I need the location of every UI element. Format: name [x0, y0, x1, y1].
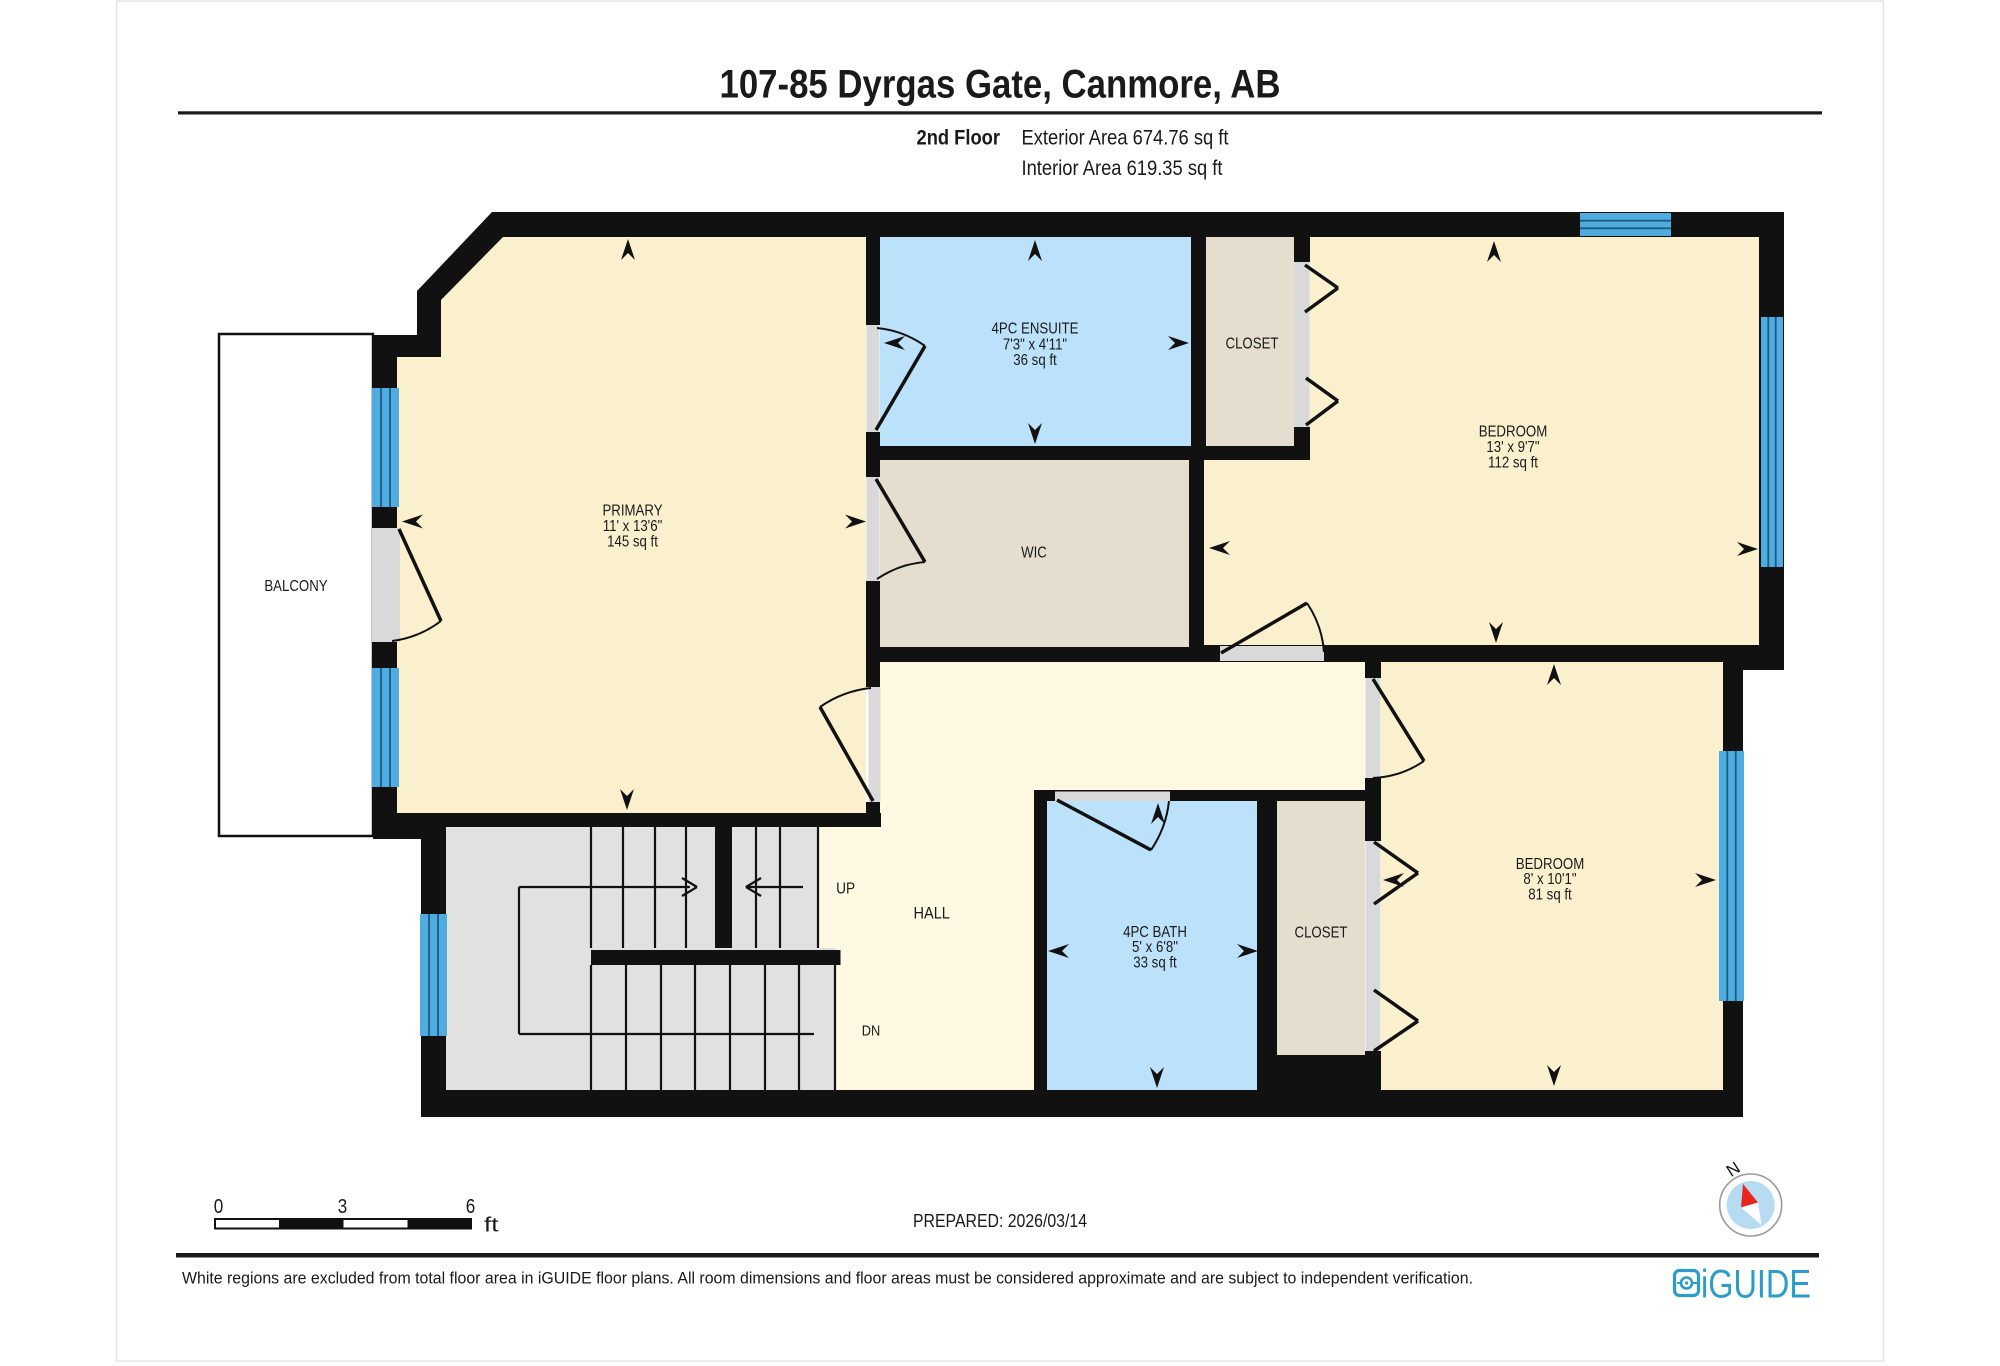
svg-text:7'3" x 4'11": 7'3" x 4'11": [1003, 336, 1067, 353]
svg-text:112 sq ft: 112 sq ft: [1488, 455, 1538, 472]
svg-text:2nd Floor: 2nd Floor: [917, 126, 1001, 150]
svg-text:8' x 10'1": 8' x 10'1": [1523, 871, 1576, 888]
svg-text:ft: ft: [484, 1215, 499, 1237]
svg-text:81 sq ft: 81 sq ft: [1528, 887, 1572, 904]
svg-text:CLOSET: CLOSET: [1295, 924, 1348, 941]
svg-text:6: 6: [466, 1196, 476, 1218]
svg-text:5' x 6'8": 5' x 6'8": [1132, 939, 1178, 956]
svg-text:iGUIDE: iGUIDE: [1701, 1263, 1811, 1307]
svg-text:PREPARED: 2026/03/14: PREPARED: 2026/03/14: [913, 1211, 1087, 1231]
svg-text:33 sq ft: 33 sq ft: [1133, 955, 1177, 972]
svg-text:Exterior Area 674.76 sq ft: Exterior Area 674.76 sq ft: [1022, 126, 1229, 150]
svg-text:3: 3: [338, 1196, 348, 1218]
svg-text:145 sq ft: 145 sq ft: [607, 534, 658, 551]
svg-text:White regions are excluded fro: White regions are excluded from total fl…: [182, 1268, 1473, 1287]
svg-text:DN: DN: [862, 1023, 881, 1040]
svg-text:Interior Area 619.35 sq ft: Interior Area 619.35 sq ft: [1022, 156, 1223, 180]
svg-text:107-85 Dyrgas Gate, Canmore, A: 107-85 Dyrgas Gate, Canmore, AB: [720, 63, 1281, 107]
svg-text:UP: UP: [836, 881, 855, 898]
svg-text:BEDROOM: BEDROOM: [1479, 423, 1548, 440]
svg-text:HALL: HALL: [914, 904, 950, 923]
svg-text:CLOSET: CLOSET: [1226, 335, 1279, 352]
svg-text:13' x 9'7": 13' x 9'7": [1486, 439, 1539, 456]
svg-text:4PC ENSUITE: 4PC ENSUITE: [992, 321, 1079, 338]
svg-text:BALCONY: BALCONY: [264, 578, 327, 595]
svg-text:0: 0: [214, 1196, 224, 1218]
svg-text:36 sq ft: 36 sq ft: [1013, 352, 1057, 369]
svg-text:PRIMARY: PRIMARY: [602, 503, 662, 520]
svg-text:WIC: WIC: [1021, 544, 1047, 561]
